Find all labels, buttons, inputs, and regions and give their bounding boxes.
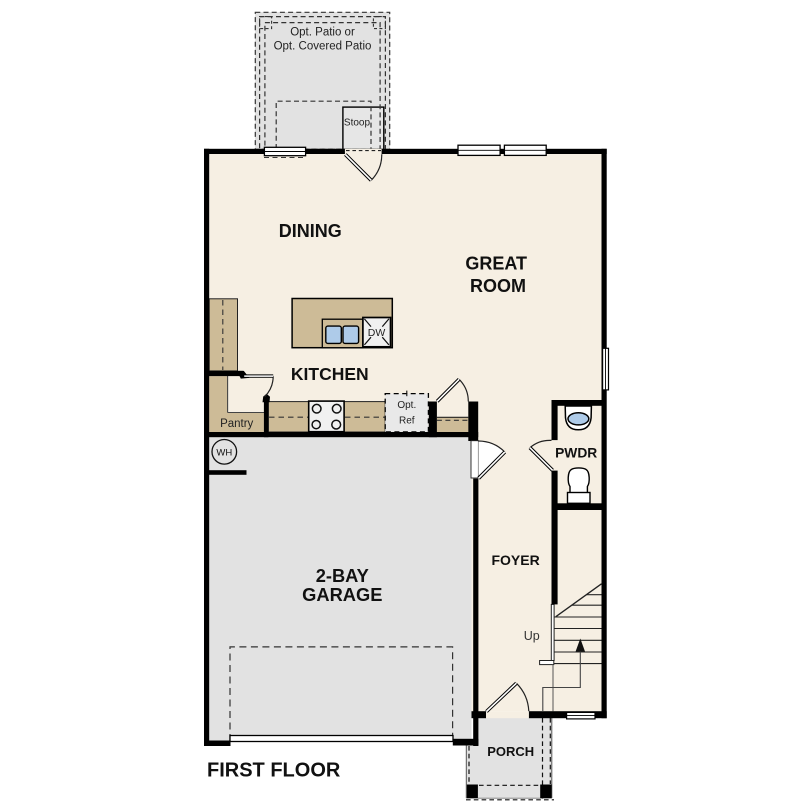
svg-text:FIRST FLOOR: FIRST FLOOR <box>207 760 341 782</box>
svg-text:ROOM: ROOM <box>470 276 526 296</box>
svg-text:Ref: Ref <box>399 416 415 427</box>
svg-text:FOYER: FOYER <box>491 552 539 568</box>
svg-text:Pantry: Pantry <box>220 418 253 430</box>
svg-text:GREAT: GREAT <box>465 253 527 273</box>
svg-text:PWDR: PWDR <box>555 445 597 460</box>
svg-text:Stoop: Stoop <box>344 118 371 129</box>
svg-text:KITCHEN: KITCHEN <box>291 364 369 384</box>
svg-text:2-BAY: 2-BAY <box>316 565 369 586</box>
svg-text:Opt. Patio or: Opt. Patio or <box>290 27 355 39</box>
svg-text:DINING: DINING <box>279 221 342 241</box>
svg-text:GARAGE: GARAGE <box>302 584 382 605</box>
svg-text:WH: WH <box>216 447 232 458</box>
svg-text:Opt. Covered Patio: Opt. Covered Patio <box>274 41 372 53</box>
svg-text:Opt.: Opt. <box>397 400 416 411</box>
svg-text:PORCH: PORCH <box>487 744 534 759</box>
svg-text:DW: DW <box>368 327 386 339</box>
svg-text:Up: Up <box>524 629 540 643</box>
